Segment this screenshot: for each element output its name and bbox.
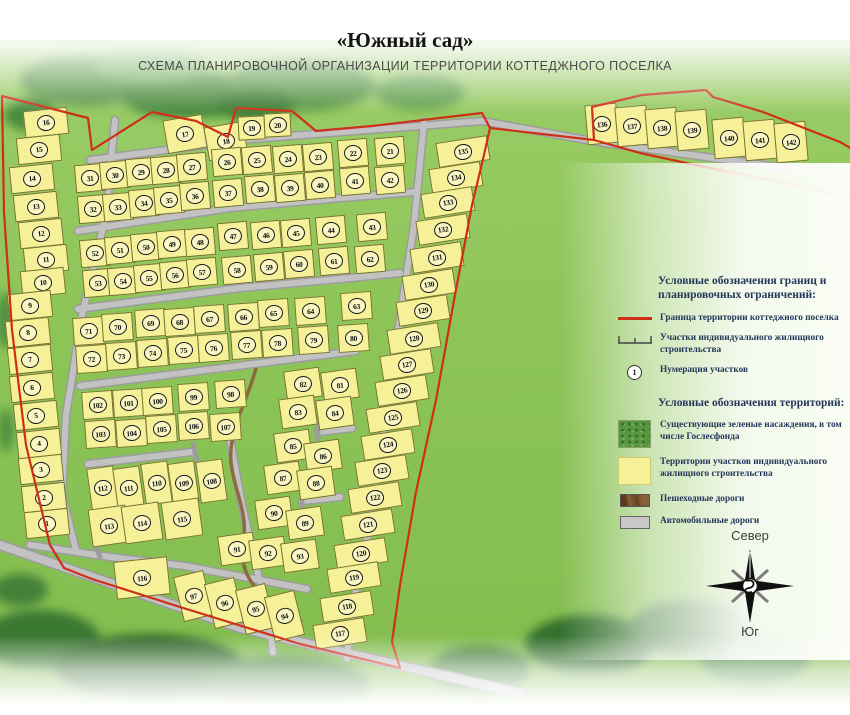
plot-135: 135 — [435, 135, 490, 168]
plot-91: 91 — [217, 532, 257, 567]
plot-121: 121 — [340, 508, 395, 541]
plot-number: 83 — [288, 403, 308, 421]
plot-number: 90 — [264, 504, 284, 522]
plot-128: 128 — [386, 322, 441, 355]
legend-item-label: Участки индивидуального жилищного строит… — [660, 332, 842, 356]
dead-end-heads — [94, 425, 318, 557]
plot-49: 49 — [156, 229, 188, 260]
compass-south-label: Юг — [700, 624, 800, 639]
plot-8: 8 — [5, 316, 52, 347]
plot-62: 62 — [354, 244, 386, 275]
plot-4: 4 — [16, 427, 63, 458]
plot-27: 27 — [176, 152, 208, 183]
plot-43: 43 — [356, 212, 388, 243]
plot-15: 15 — [16, 133, 63, 164]
survey-line-icon — [617, 333, 653, 346]
plot-89: 89 — [285, 506, 325, 541]
plot-77: 77 — [230, 330, 263, 360]
plot-134: 134 — [428, 161, 483, 194]
plot-number: 123 — [372, 461, 392, 480]
plot-number: 18 — [216, 132, 237, 151]
legend-item-label: Пешеходные дороги — [660, 493, 842, 505]
plot-number: 87 — [273, 469, 293, 487]
plot-number: 110 — [146, 474, 166, 492]
plot-number: 86 — [313, 447, 333, 465]
plot-81: 81 — [320, 368, 360, 403]
plot-number: 81 — [330, 376, 350, 394]
plot-number: 43 — [362, 218, 381, 236]
plot-number: 58 — [227, 261, 246, 279]
plot-58: 58 — [221, 255, 253, 286]
plot-39: 39 — [274, 173, 306, 204]
plot-52: 52 — [79, 238, 111, 269]
plot-number: 62 — [360, 250, 379, 268]
plot-number: 17 — [175, 125, 196, 144]
plot-number: 72 — [81, 350, 100, 367]
plot-number: 94 — [273, 606, 294, 626]
plot-number: 30 — [105, 166, 124, 184]
plot-number: 47 — [223, 227, 242, 245]
plot-number: 114 — [132, 514, 152, 532]
plot-20: 20 — [263, 112, 291, 137]
green-areas-icon — [618, 420, 651, 448]
plot-59: 59 — [253, 252, 285, 283]
plot-111: 111 — [112, 465, 145, 510]
plot-131: 131 — [409, 241, 464, 274]
plot-number: 99 — [183, 388, 202, 405]
plot-99: 99 — [177, 382, 210, 412]
legend-item-label: Граница территории коттеджного поселка — [660, 312, 842, 324]
plot-140: 140 — [711, 117, 746, 160]
fade-bottom — [0, 635, 850, 715]
plot-63: 63 — [340, 291, 373, 321]
plot-number: 27 — [182, 158, 201, 176]
plot-number: 32 — [83, 200, 102, 218]
plot-108: 108 — [195, 458, 228, 503]
plot-number: 50 — [136, 238, 155, 256]
plot-22: 22 — [337, 138, 369, 169]
plot-number: 52 — [85, 244, 104, 262]
plot-number: 82 — [293, 375, 313, 393]
plot-number: 78 — [267, 334, 286, 351]
plot-136: 136 — [584, 103, 619, 146]
plot-61: 61 — [318, 246, 350, 277]
compass-north-label: Север — [700, 528, 800, 543]
plot-110: 110 — [140, 460, 173, 505]
plot-number: 130 — [419, 275, 439, 294]
plot-number: 120 — [351, 544, 371, 563]
plot-93: 93 — [280, 539, 320, 574]
plot-41: 41 — [339, 166, 371, 197]
plot-number: 42 — [380, 171, 399, 189]
plot-number: 41 — [345, 172, 364, 190]
plot-18: 18 — [203, 121, 248, 161]
plot-number: 118 — [337, 597, 357, 616]
boundary-line-icon — [618, 317, 652, 320]
plot-82: 82 — [283, 367, 323, 402]
legend-boundaries-header: Условные обозначения границ и планировоч… — [658, 274, 848, 303]
plot-number: 8 — [18, 323, 38, 341]
pedestrian-road-icon — [620, 494, 650, 507]
plot-number: 140 — [719, 129, 738, 147]
plot-83: 83 — [278, 395, 318, 430]
plot-number: 6 — [22, 378, 42, 396]
plot-123: 123 — [354, 454, 409, 487]
plot-number: 63 — [346, 297, 365, 314]
legend-item-icon-box — [616, 333, 653, 346]
legend-item-icon-box — [616, 420, 653, 448]
plot-55: 55 — [133, 263, 165, 294]
plot-number: 67 — [199, 310, 218, 327]
plot-84: 84 — [315, 396, 355, 431]
plot-71: 71 — [72, 316, 105, 346]
legend-territories-header: Условные обозначения территорий: — [658, 396, 848, 410]
plot-115: 115 — [161, 498, 204, 541]
plot-number: 38 — [250, 180, 269, 198]
legend-item-icon-box — [616, 494, 653, 507]
plot-number: 137 — [622, 117, 641, 135]
plot-number: 80 — [343, 329, 362, 346]
plot-60: 60 — [283, 249, 315, 280]
plot-number: 115 — [172, 510, 192, 528]
plot-21: 21 — [374, 136, 406, 167]
plot-74: 74 — [136, 338, 169, 368]
plot-119: 119 — [326, 561, 381, 594]
plot-36: 36 — [179, 181, 211, 212]
pedestrian-path — [231, 368, 302, 622]
plot-137: 137 — [614, 105, 649, 148]
plot-80: 80 — [337, 323, 370, 353]
plot-26: 26 — [211, 147, 243, 178]
plot-number: 117 — [330, 624, 350, 643]
plot-number: 122 — [365, 488, 385, 507]
plot-number: 5 — [26, 406, 46, 424]
plot-number: 28 — [156, 161, 175, 179]
plot-number: 59 — [259, 258, 278, 276]
plot-117: 117 — [312, 617, 367, 650]
plot-12: 12 — [18, 217, 65, 248]
plot-number: 40 — [310, 176, 329, 194]
plot-number: 131 — [427, 248, 447, 267]
plot-13: 13 — [13, 190, 60, 221]
plot-number: 46 — [256, 226, 275, 244]
plot-number: 106 — [183, 417, 202, 434]
plot-number: 25 — [247, 151, 266, 169]
plot-number: 35 — [159, 191, 178, 209]
plot-number: 111 — [118, 479, 138, 497]
plot-34: 34 — [128, 188, 160, 219]
plot-number: 7 — [20, 350, 40, 368]
plot-number: 113 — [99, 517, 119, 535]
plot-number: 107 — [215, 418, 234, 435]
plot-number: 45 — [286, 224, 305, 242]
plot-40: 40 — [304, 170, 336, 201]
plot-number: 56 — [165, 266, 184, 284]
plot-number: 10 — [33, 273, 53, 291]
plot-139: 139 — [674, 109, 709, 152]
plot-number: 21 — [380, 142, 399, 160]
plot-number: 92 — [258, 544, 278, 562]
plot-number: 1 — [37, 514, 57, 532]
legend-item-icon-box — [616, 457, 653, 485]
plot-109: 109 — [167, 460, 200, 505]
plot-17: 17 — [162, 114, 207, 154]
plot-118: 118 — [319, 590, 374, 623]
plot-number: 136 — [592, 115, 611, 133]
legend-boundaries-items: Граница территории коттеджного поселкаУч… — [616, 312, 846, 380]
plot-number: 13 — [26, 197, 46, 215]
plot-number: 125 — [383, 408, 403, 427]
plot-76: 76 — [197, 333, 230, 363]
plot-113: 113 — [88, 505, 131, 548]
plot-number: 104 — [121, 424, 140, 441]
plot-number: 76 — [203, 339, 222, 356]
plot-29: 29 — [125, 157, 157, 188]
plot-number: 129 — [413, 301, 433, 320]
plot-94: 94 — [263, 590, 304, 642]
plot-number: 51 — [110, 241, 129, 259]
plot-number: 98 — [220, 385, 239, 402]
legend-item: Территории участков индивидуального жили… — [616, 456, 846, 485]
plot-95: 95 — [234, 583, 275, 635]
plot-number: 36 — [185, 187, 204, 205]
plot-138: 138 — [644, 107, 679, 150]
plot-number: 100 — [147, 392, 166, 409]
plot-number: 14 — [22, 169, 42, 187]
plot-120: 120 — [333, 537, 388, 570]
plot-25: 25 — [241, 145, 273, 176]
plot-number: 60 — [289, 255, 308, 273]
page-title: «Южный сад» — [0, 28, 810, 53]
plot-number: 77 — [236, 336, 255, 353]
plot-number: 133 — [438, 193, 458, 212]
plot-142: 142 — [773, 121, 808, 164]
plot-number: 68 — [169, 313, 188, 330]
plot-114: 114 — [121, 502, 164, 545]
plot-105: 105 — [145, 414, 178, 444]
plot-53: 53 — [82, 268, 114, 299]
plot-territory-icon — [618, 457, 651, 485]
legend-item: 1Нумерация участков — [616, 364, 846, 380]
plot-122: 122 — [347, 481, 402, 514]
plot-130: 130 — [401, 268, 456, 301]
plot-33: 33 — [102, 192, 134, 223]
plot-1: 1 — [24, 507, 71, 538]
compass-rose-icon — [702, 546, 798, 626]
plot-9: 9 — [7, 289, 54, 320]
plot-90: 90 — [254, 496, 294, 531]
plot-141: 141 — [742, 119, 777, 162]
legend-item-label: Территории участков индивидуального жили… — [660, 456, 842, 480]
plot-44: 44 — [315, 215, 347, 246]
plot-number: 112 — [92, 479, 112, 497]
plot-101: 101 — [112, 388, 145, 418]
legend-item-label: Автомобильные дороги — [660, 515, 842, 527]
plot-number: 132 — [433, 220, 453, 239]
plot-number: 84 — [325, 404, 345, 422]
plot-57: 57 — [186, 257, 218, 288]
plot-number: 65 — [263, 304, 282, 321]
plot-number: 141 — [750, 131, 769, 149]
site-plan: 1615141312111098765432117181920313029282… — [0, 0, 850, 715]
plot-50: 50 — [130, 232, 162, 263]
legend-item-label: Нумерация участков — [660, 364, 842, 376]
plot-132: 132 — [415, 213, 470, 246]
plot-number: 71 — [78, 322, 97, 339]
plot-133: 133 — [420, 186, 475, 219]
plot-number: 95 — [244, 599, 265, 619]
plot-46: 46 — [250, 220, 282, 251]
plot-number: 19 — [242, 120, 261, 137]
plot-number: 23 — [308, 148, 327, 166]
plot-51: 51 — [104, 235, 136, 266]
plot-number: 69 — [140, 314, 159, 331]
plot-number: 109 — [173, 474, 193, 492]
plot-42: 42 — [374, 165, 406, 196]
plot-16: 16 — [23, 106, 70, 137]
plot-68: 68 — [163, 307, 196, 337]
legend-item: Участки индивидуального жилищного строит… — [616, 332, 846, 356]
plot-number: 96 — [213, 593, 234, 613]
plot-number: 34 — [134, 194, 153, 212]
plot-38: 38 — [244, 174, 276, 205]
plot-number: 33 — [108, 198, 127, 216]
plot-54: 54 — [107, 266, 139, 297]
plot-79: 79 — [297, 325, 330, 355]
plot-11: 11 — [23, 243, 70, 274]
plot-number: 48 — [190, 233, 209, 251]
plot-number: 64 — [300, 302, 319, 319]
plot-56: 56 — [159, 260, 191, 291]
plot-number: 3 — [31, 460, 51, 478]
plot-number: 22 — [343, 144, 362, 162]
plot-85: 85 — [273, 429, 313, 464]
plot-number: 121 — [358, 515, 378, 534]
plot-112: 112 — [86, 465, 119, 510]
plot-96: 96 — [203, 577, 244, 629]
plot-number: 85 — [283, 437, 303, 455]
plot-number: 49 — [162, 235, 181, 253]
plot-number: 70 — [107, 318, 126, 335]
plot-number: 2 — [34, 488, 54, 506]
car-road-icon — [620, 516, 650, 529]
plot-102: 102 — [81, 390, 114, 420]
plot-64: 64 — [294, 296, 327, 326]
plot-number: 61 — [324, 252, 343, 270]
plot-88: 88 — [296, 466, 336, 501]
plot-125: 125 — [365, 401, 420, 434]
plot-number: 142 — [781, 133, 800, 151]
plot-73: 73 — [105, 341, 138, 371]
plot-number: 73 — [111, 347, 130, 364]
plot-67: 67 — [193, 304, 226, 334]
plot-127: 127 — [379, 348, 434, 381]
plot-number: 134 — [446, 168, 466, 187]
plot-number: 127 — [397, 355, 417, 374]
plot-number: 102 — [87, 396, 106, 413]
legend-item-icon-box: 1 — [616, 365, 653, 380]
plot-number: 103 — [90, 425, 109, 442]
plot-number: 93 — [290, 547, 310, 565]
legend-item-icon-box — [616, 516, 653, 529]
legend-item: Граница территории коттеджного поселка — [616, 312, 846, 324]
plot-number: 91 — [227, 540, 247, 558]
plot-number: 88 — [306, 474, 326, 492]
plot-number: 101 — [118, 394, 137, 411]
plot-92: 92 — [248, 536, 288, 571]
plot-2: 2 — [21, 481, 68, 512]
plot-65: 65 — [257, 298, 290, 328]
plot-45: 45 — [280, 218, 312, 249]
plot-number: 135 — [453, 142, 473, 161]
plot-number: 105 — [151, 420, 170, 437]
plot-107: 107 — [209, 412, 242, 442]
legend-item-label: Существующие зеленые насаждения, в том ч… — [660, 419, 842, 443]
plot-number: 128 — [404, 329, 424, 348]
plot-31: 31 — [74, 163, 106, 194]
plot-70: 70 — [101, 312, 134, 342]
plot-number: 57 — [192, 263, 211, 281]
plot-35: 35 — [153, 185, 185, 216]
plot-69: 69 — [134, 308, 167, 338]
plot-75: 75 — [167, 335, 200, 365]
plot-32: 32 — [77, 194, 109, 225]
plot-number: 44 — [321, 221, 340, 239]
plot-number: 11 — [36, 250, 56, 268]
page-subtitle: СХЕМА ПЛАНИРОВОЧНОЙ ОРГАНИЗАЦИИ ТЕРРИТОР… — [0, 59, 810, 73]
plot-number: 9 — [20, 296, 40, 314]
plot-66: 66 — [227, 302, 260, 332]
plot-number: 79 — [303, 331, 322, 348]
legend-item: Пешеходные дороги — [616, 493, 846, 507]
plot-number: 29 — [131, 163, 150, 181]
plot-number: 75 — [173, 341, 192, 358]
plot-103: 103 — [84, 419, 117, 449]
legend-item: Существующие зеленые насаждения, в том ч… — [616, 419, 846, 448]
plot-number: 89 — [295, 514, 315, 532]
plot-number: 116 — [132, 569, 152, 587]
plot-number: 108 — [201, 472, 221, 490]
plot-number: 37 — [218, 184, 237, 202]
plot-number: 54 — [113, 272, 132, 290]
plot-100: 100 — [141, 386, 174, 416]
plot-number: 55 — [139, 269, 158, 287]
plot-number: 39 — [280, 179, 299, 197]
plot-19: 19 — [237, 115, 265, 140]
plot-number: 16 — [36, 113, 56, 131]
plot-98: 98 — [214, 379, 247, 409]
plot-97: 97 — [172, 570, 213, 622]
plot-number: 12 — [31, 224, 51, 242]
plot-6: 6 — [9, 371, 56, 402]
plot-72: 72 — [75, 344, 108, 374]
plot-number: 97 — [182, 586, 203, 606]
plot-28: 28 — [150, 155, 182, 186]
plot-10: 10 — [20, 266, 67, 297]
plot-124: 124 — [360, 428, 415, 461]
plot-number-icon: 1 — [627, 365, 642, 380]
plot-129: 129 — [395, 294, 450, 327]
plot-48: 48 — [184, 227, 216, 258]
plot-24: 24 — [272, 144, 304, 175]
plot-number: 20 — [268, 117, 287, 134]
plot-number: 119 — [344, 568, 364, 587]
plot-106: 106 — [177, 411, 210, 441]
plot-number: 74 — [142, 344, 161, 361]
legend-item-icon-box — [616, 313, 653, 320]
plot-number: 4 — [29, 434, 49, 452]
legend-territories-items: Существующие зеленые насаждения, в том ч… — [616, 419, 846, 529]
